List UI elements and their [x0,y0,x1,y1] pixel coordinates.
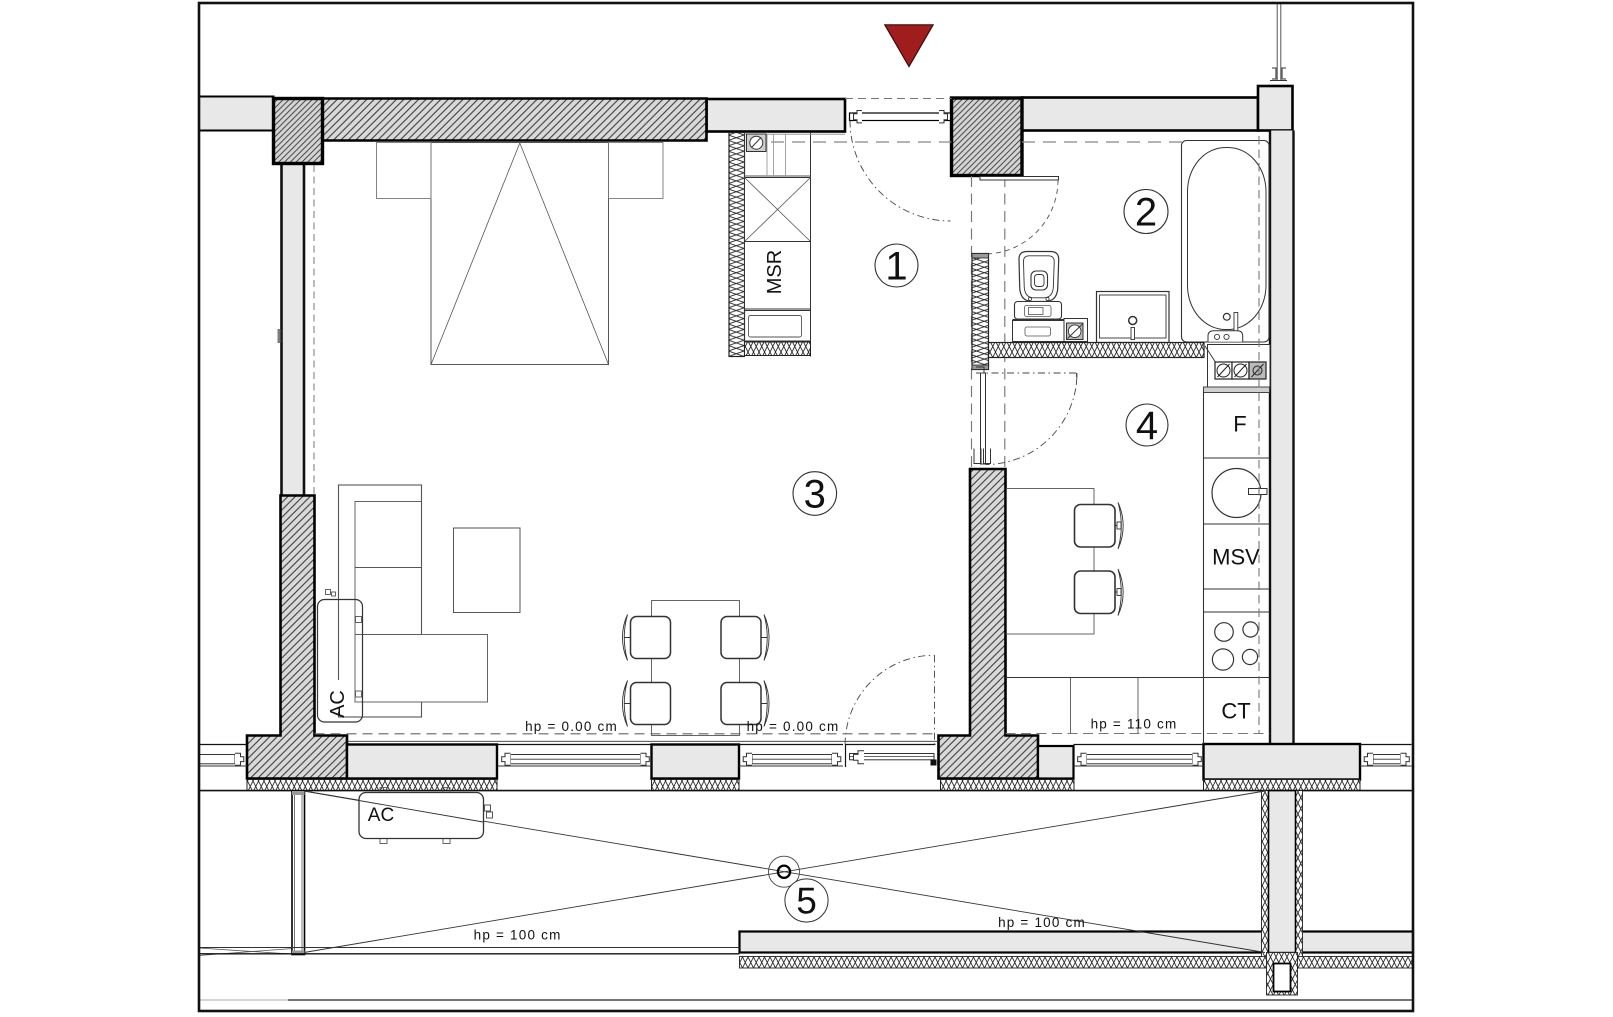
svg-text:1: 1 [885,245,907,289]
svg-text:CT: CT [1221,699,1250,724]
svg-text:hp = 100 cm: hp = 100 cm [474,928,562,943]
svg-text:MSV: MSV [1212,545,1260,570]
svg-text:2: 2 [1135,191,1157,235]
svg-text:hp = 110 cm: hp = 110 cm [1091,717,1178,732]
svg-text:5: 5 [796,881,817,922]
svg-text:F: F [1233,412,1246,437]
svg-text:4: 4 [1136,404,1158,448]
svg-text:3: 3 [804,473,826,517]
svg-text:MSR: MSR [764,250,786,294]
svg-text:AC: AC [368,805,394,826]
svg-text:hp = 0.00 cm: hp = 0.00 cm [525,719,618,734]
svg-text:AC: AC [327,690,349,718]
svg-text:hp = 100 cm: hp = 100 cm [998,915,1086,930]
svg-text:hp = 0.00 cm: hp = 0.00 cm [747,719,840,734]
